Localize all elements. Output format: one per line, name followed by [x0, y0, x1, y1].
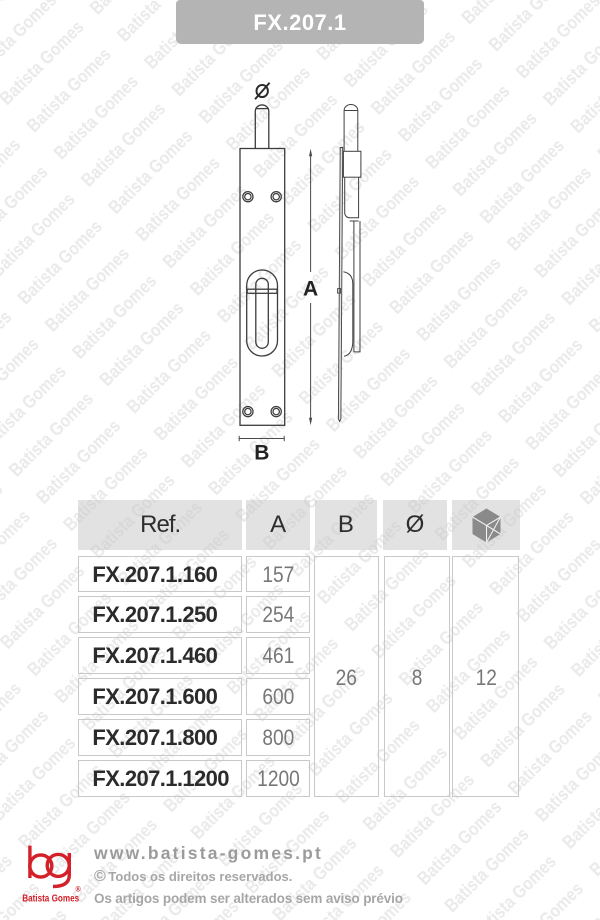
svg-text:®: ®	[76, 886, 82, 894]
svg-text:Batista Gomes: Batista Gomes	[22, 894, 79, 905]
svg-text:A: A	[303, 278, 318, 301]
svg-text:B: B	[254, 442, 269, 465]
